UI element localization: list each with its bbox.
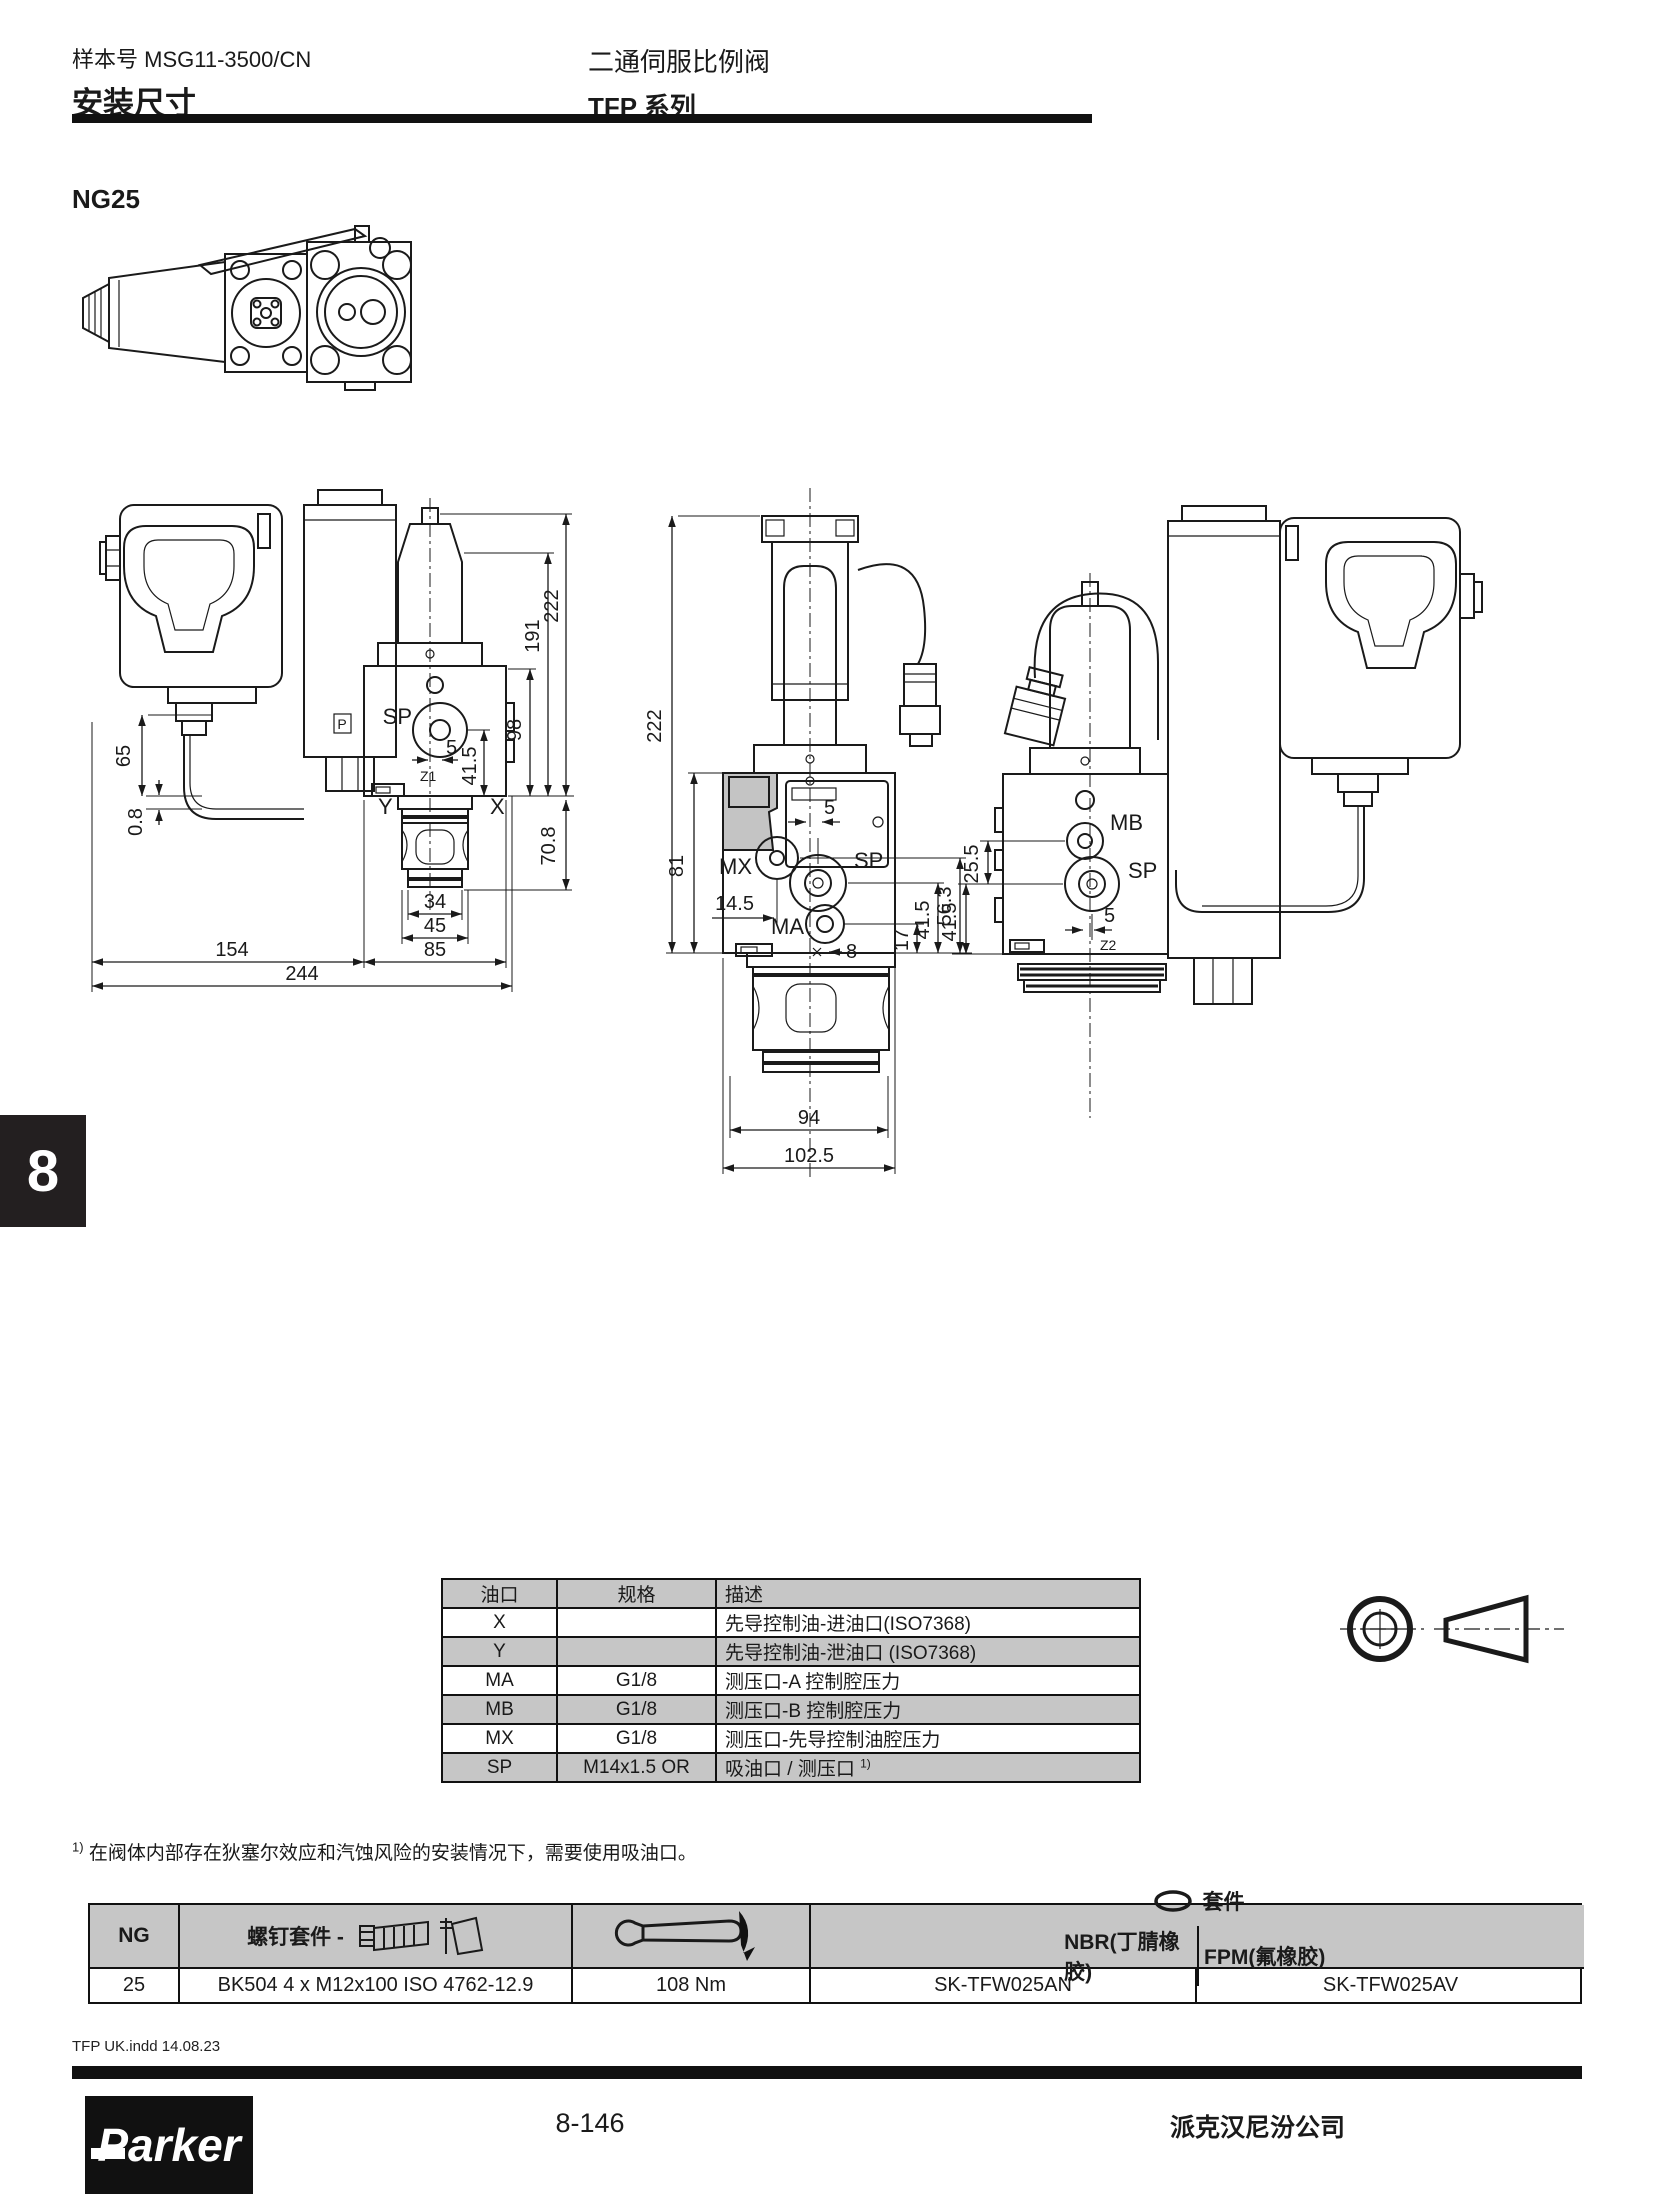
dim-34: 34 bbox=[424, 891, 446, 913]
kits-col-seal: 套件 NBR(丁腈橡胶) FPM(氟橡胶) bbox=[811, 1905, 1584, 1969]
footnote: 1) 在阀体内部存在狄塞尔效应和汽蚀风险的安装情况下，需要使用吸油口。 bbox=[72, 1838, 697, 1865]
dim-8: 8 bbox=[846, 941, 857, 963]
kits-table: NG 螺钉套件 - bbox=[88, 1903, 1582, 2004]
dim-244: 244 bbox=[285, 963, 318, 985]
col-header-desc: 描述 bbox=[716, 1579, 1140, 1608]
dim-191: 191 bbox=[522, 619, 544, 652]
col-header-port: 油口 bbox=[442, 1579, 557, 1608]
torque-wrench-icon bbox=[611, 1909, 771, 1963]
dim-5-front: 5 bbox=[824, 797, 835, 819]
dim-0-8: 0.8 bbox=[125, 808, 147, 836]
port-label-sp-back: SP bbox=[1128, 858, 1157, 883]
port-label-sp-front: SP bbox=[854, 848, 883, 873]
dim-14-5: 14.5 bbox=[715, 893, 754, 915]
page-number: 8-146 bbox=[470, 2108, 710, 2139]
kits-col-bolt: 螺钉套件 - bbox=[180, 1905, 573, 1969]
chapter-tab: 8 bbox=[0, 1115, 86, 1227]
kit-fpm: SK-TFW025AV bbox=[1197, 1969, 1584, 2002]
ports-table: 油口 规格 描述 X 先导控制油-进油口(ISO7368) Y 先导控制油-泄油… bbox=[441, 1578, 1141, 1783]
parker-tag-back bbox=[1286, 526, 1298, 560]
port-label-mb: MB bbox=[1110, 810, 1143, 835]
cable-connector-back bbox=[1005, 687, 1065, 746]
table-row: SP M14x1.5 OR 吸油口 / 测压口 1) bbox=[442, 1753, 1140, 1782]
dim-154: 154 bbox=[215, 939, 248, 961]
header-left: 样本号 MSG11-3500/CN 安装尺寸 bbox=[72, 42, 311, 123]
dim-94: 94 bbox=[798, 1107, 820, 1129]
kit-bolt: BK504 4 x M12x100 ISO 4762-12.9 bbox=[180, 1969, 573, 2002]
cable-gland bbox=[176, 703, 212, 721]
port-sp-back bbox=[1065, 857, 1119, 911]
bolt-icon bbox=[354, 1914, 504, 1958]
header-rule bbox=[72, 114, 1092, 123]
dim-102-5: 102.5 bbox=[784, 1145, 834, 1167]
port-label-x: X bbox=[490, 794, 505, 819]
product-title: 二通伺服比例阀 bbox=[588, 42, 770, 79]
table-row: MB G1/8 测压口-B 控制腔压力 bbox=[442, 1695, 1140, 1724]
dim-222-front: 222 bbox=[644, 709, 666, 742]
dim-98: 98 bbox=[504, 719, 526, 741]
table-row: Y 先导控制油-泄油口 (ISO7368) bbox=[442, 1637, 1140, 1666]
kits-data-row: 25 BK504 4 x M12x100 ISO 4762-12.9 108 N… bbox=[88, 1969, 1582, 2004]
kits-col-ng: NG bbox=[90, 1905, 180, 1969]
dim-70-8: 70.8 bbox=[538, 827, 560, 866]
catalog-page: 样本号 MSG11-3500/CN 安装尺寸 二通伺服比例阀 TFP 系列 NG… bbox=[0, 0, 1654, 2200]
view-front: MX SP MA 5 14.5 8 bbox=[644, 488, 972, 1178]
size-heading: NG25 bbox=[72, 184, 140, 215]
port-label-mx: MX bbox=[719, 854, 752, 879]
dim-41-5-back: 41.5 bbox=[939, 903, 961, 942]
dim-41-5: 41.5 bbox=[459, 747, 481, 786]
port-label-sp: SP bbox=[383, 704, 412, 729]
view-side: P Z1 SP Y bbox=[92, 490, 574, 992]
o-ring-icon bbox=[1151, 1889, 1195, 1913]
logo-stripe bbox=[91, 2148, 125, 2159]
dim-5-back: 5 bbox=[1104, 905, 1115, 927]
port-label-z2: Z2 bbox=[1100, 937, 1117, 953]
kit-torque: 108 Nm bbox=[573, 1969, 811, 2002]
cable-gland-back bbox=[1338, 774, 1378, 792]
table-row: MX G1/8 测压口-先导控制油腔压力 bbox=[442, 1724, 1140, 1753]
footnote-text: 在阀体内部存在狄塞尔效应和汽蚀风险的安装情况下，需要使用吸油口。 bbox=[89, 1843, 697, 1864]
view-back: MB SP Z2 bbox=[939, 506, 1482, 1118]
kit-nbr: SK-TFW025AN bbox=[811, 1969, 1197, 2002]
torque-arrow bbox=[739, 1911, 755, 1961]
footer-rule bbox=[72, 2066, 1582, 2079]
port-label-y: Y bbox=[378, 794, 393, 819]
dim-41-5-front: 41.5 bbox=[912, 901, 934, 940]
port-label-p: P bbox=[337, 716, 346, 732]
kit-ng: 25 bbox=[90, 1969, 180, 2002]
table-row: MA G1/8 测压口-A 控制腔压力 bbox=[442, 1666, 1140, 1695]
dim-222: 222 bbox=[541, 589, 563, 622]
dim-85: 85 bbox=[424, 939, 446, 961]
kits-col-torque bbox=[573, 1905, 811, 1969]
dim-5: 5 bbox=[446, 737, 457, 759]
dim-45: 45 bbox=[424, 915, 446, 937]
dim-17: 17 bbox=[891, 929, 913, 951]
valve-iso-drawing bbox=[75, 220, 460, 435]
projection-symbol bbox=[1338, 1582, 1568, 1677]
ports-header-row: 油口 规格 描述 bbox=[442, 1579, 1140, 1608]
cable-connector bbox=[904, 664, 936, 706]
footnote-marker: 1) bbox=[72, 1840, 84, 1855]
table-row: X 先导控制油-进油口(ISO7368) bbox=[442, 1608, 1140, 1637]
dim-65: 65 bbox=[113, 745, 135, 767]
port-label-z1: Z1 bbox=[420, 768, 437, 784]
col-header-size: 规格 bbox=[557, 1579, 716, 1608]
dim-25-5: 25.5 bbox=[961, 845, 983, 884]
imprint: TFP UK.indd 14.08.23 bbox=[72, 2038, 220, 2055]
company-name: 派克汉尼汾公司 bbox=[1000, 2108, 1345, 2144]
header-right: 二通伺服比例阀 TFP 系列 bbox=[588, 42, 770, 124]
parker-logo: Parker bbox=[85, 2096, 253, 2194]
parker-tag bbox=[258, 514, 270, 548]
port-label-ma: MA bbox=[771, 914, 804, 939]
catalog-number: 样本号 MSG11-3500/CN bbox=[72, 42, 311, 74]
dimension-drawing: P Z1 SP Y bbox=[72, 478, 1502, 1278]
dim-81: 81 bbox=[666, 855, 688, 877]
port-mb bbox=[1067, 823, 1103, 859]
